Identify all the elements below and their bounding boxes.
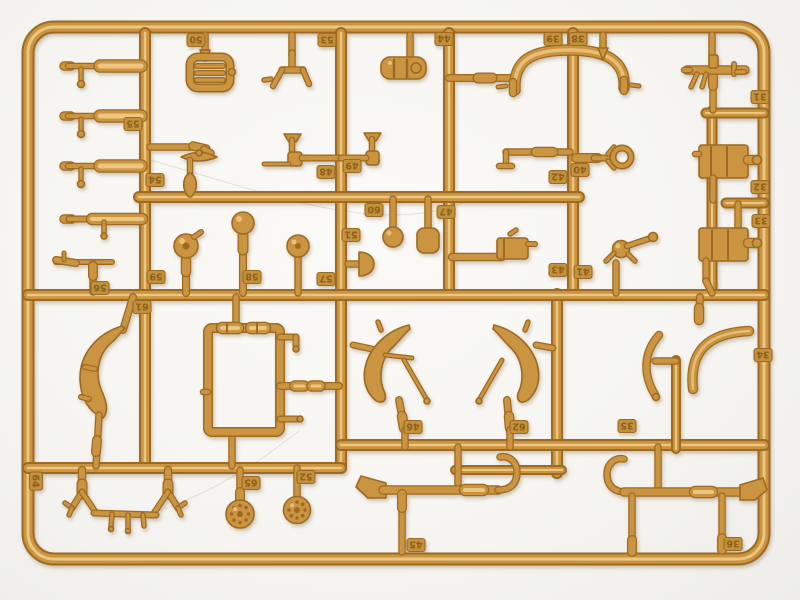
part-number-tag: 60 xyxy=(365,204,383,217)
part-number-tag: 64 xyxy=(30,472,43,490)
part-number-tag: 34 xyxy=(754,349,772,362)
part-number-tag: 38 xyxy=(569,33,587,46)
part-number-label: 65 xyxy=(244,477,257,488)
part-number-label: 50 xyxy=(189,34,203,45)
fender-part-left xyxy=(80,297,133,466)
perforated-wheel-part-1-hc xyxy=(238,504,242,508)
exhaust-pipe-part-left xyxy=(356,447,517,552)
part-number-label: 32 xyxy=(753,181,766,192)
perforated-wheel-part-2-hc xyxy=(301,514,305,518)
part-number-label: 33 xyxy=(754,215,767,226)
part-number-tag: 57 xyxy=(317,273,335,286)
part-number-tag: 54 xyxy=(146,174,164,187)
part-number-label: 51 xyxy=(344,229,357,240)
square-pad-part xyxy=(417,199,439,253)
perforated-wheel-part-1-hc xyxy=(244,518,248,522)
perforated-wheel-part-2-hc xyxy=(294,507,300,513)
funnel-part-left xyxy=(264,134,341,166)
part-number-label: 44 xyxy=(437,33,451,44)
part-number-label: 41 xyxy=(576,266,589,277)
perforated-wheel-part-2-hc xyxy=(303,508,307,512)
dome-bell-part-path xyxy=(359,252,374,276)
part-number-label: 52 xyxy=(299,471,312,482)
part-number-tag: 42 xyxy=(549,171,567,184)
wing-and-funnel-part xyxy=(181,150,217,197)
perforated-wheel-part-1-hc xyxy=(237,511,243,517)
part-number-tag: 62 xyxy=(510,421,528,434)
sprue-tree: 5053443938315554484942403233476051595857… xyxy=(28,27,772,559)
part-number-label: 34 xyxy=(756,349,770,360)
part-number-tag: 51 xyxy=(342,229,360,242)
chassis-frame-part-orect xyxy=(208,328,280,432)
small-wheel-part xyxy=(287,235,309,293)
part-number-tag: 33 xyxy=(752,215,770,228)
pistol-part-2-c xyxy=(78,131,85,138)
curved-arm-part-thin-c xyxy=(653,394,660,401)
part-number-label: 39 xyxy=(546,33,559,44)
part-number-label: 64 xyxy=(30,474,41,488)
mg-with-bipod-part-rect xyxy=(709,55,718,68)
fender-part-left-rod xyxy=(85,367,95,369)
part-number-tag: 31 xyxy=(751,91,769,104)
fender-part-left-rod xyxy=(96,440,97,452)
gearbox-block-part-upper-rect xyxy=(699,145,748,178)
chassis-frame-part-orect xyxy=(208,328,280,432)
part-number-label: 46 xyxy=(406,421,420,432)
wing-and-funnel-part-path xyxy=(184,173,197,197)
part-number-label: 56 xyxy=(93,282,107,293)
pistol-part-3-c xyxy=(78,181,85,188)
runner-frame xyxy=(28,27,764,559)
mg-with-bipod-part xyxy=(684,35,745,110)
perforated-wheel-part-2-hc xyxy=(301,503,305,507)
part-number-label: 48 xyxy=(319,166,333,177)
perforated-wheel-part-2-hc xyxy=(295,516,299,520)
part-number-tag: 55 xyxy=(124,118,142,131)
part-number-label: 57 xyxy=(319,273,332,284)
part-number-tag: 58 xyxy=(243,271,261,284)
part-number-label: 55 xyxy=(126,118,139,129)
aa-gun-part-lc xyxy=(616,244,621,249)
fender-part-left-rod xyxy=(81,397,89,399)
aa-gun-part-c xyxy=(649,233,658,242)
ball-knob-part-c xyxy=(232,212,254,234)
tow-bracket-part-rod xyxy=(111,514,112,527)
part-number-tag: 59 xyxy=(147,271,165,284)
horseshoe-shackle-part-rod xyxy=(498,86,506,87)
photo-scratch xyxy=(150,160,470,215)
curved-arm-part-thick xyxy=(692,297,749,389)
perforated-wheel-part-2-hc xyxy=(295,500,299,504)
part-number-label: 38 xyxy=(571,33,585,44)
part-number-label: 49 xyxy=(345,160,358,171)
dome-bell-part xyxy=(348,252,374,276)
clevis-fork-part-rod xyxy=(264,79,271,80)
part-number-tag: 43 xyxy=(549,264,567,277)
small-wheel-part-lc xyxy=(292,240,297,245)
aa-gun-part xyxy=(606,233,658,294)
pulley-disc-part xyxy=(174,232,201,293)
exhaust-pipe-part-right xyxy=(607,447,767,552)
part-number-tag: 45 xyxy=(407,539,425,552)
part-number-label: 58 xyxy=(245,271,259,282)
part-number-label: 62 xyxy=(512,421,525,432)
part-number-tag: 40 xyxy=(571,164,589,177)
perforated-wheel-part-2-hc xyxy=(290,514,294,518)
machine-gun-part xyxy=(64,219,142,239)
part-number-tag: 41 xyxy=(574,266,592,279)
pistol-part-3 xyxy=(64,166,141,188)
clevis-fork-part-rod xyxy=(303,70,309,84)
round-knob-part xyxy=(383,199,403,247)
fender-part-middle-left-rod xyxy=(404,360,427,400)
part-number-tag: 49 xyxy=(343,160,361,173)
small-wheel-part-hc xyxy=(295,243,301,249)
square-pad-part-rect xyxy=(417,228,439,253)
part-number-label: 59 xyxy=(149,271,162,282)
part-number-tag: 39 xyxy=(544,33,562,46)
part-number-label: 43 xyxy=(551,264,564,275)
part-number-label: 40 xyxy=(573,164,587,175)
perforated-wheel-part-1-hc xyxy=(238,521,242,525)
gearbox-block-part-lower-c xyxy=(753,239,762,248)
mg-receiver-part xyxy=(452,230,535,259)
clevis-fork-part xyxy=(264,35,309,86)
cylinder-drum-part xyxy=(381,35,426,79)
tow-bracket-part-c xyxy=(126,529,131,534)
chassis-frame-part xyxy=(203,297,339,466)
part-number-label: 47 xyxy=(439,206,452,217)
part-number-label: 61 xyxy=(135,301,148,312)
pistol-part-1 xyxy=(64,66,141,88)
part-number-label: 36 xyxy=(726,538,740,549)
fender-part-middle-right-c xyxy=(476,398,482,404)
hook-rod-part xyxy=(499,152,570,166)
part-number-label: 53 xyxy=(320,34,333,45)
part-number-tag: 48 xyxy=(317,166,335,179)
cylinder-drum-part-c xyxy=(411,63,421,73)
part-number-tag: 50 xyxy=(187,34,205,47)
perforated-wheel-part-1-lc xyxy=(233,507,237,511)
perforated-wheel-part-1-hc xyxy=(247,512,251,516)
grille-part-c xyxy=(229,69,236,76)
gearbox-block-part-upper-c xyxy=(753,156,762,165)
part-number-tag: 46 xyxy=(404,421,422,434)
perforated-wheel-part-1-hc xyxy=(230,512,234,516)
gearbox-block-part-lower-rect xyxy=(699,228,748,261)
part-number-label: 54 xyxy=(148,174,162,185)
part-number-tag: 47 xyxy=(437,206,455,219)
part-number-tag: 32 xyxy=(751,181,769,194)
part-number-tag: 36 xyxy=(724,538,742,551)
round-knob-part-lc xyxy=(387,231,392,236)
pistol-part-1-c xyxy=(78,81,85,88)
cylinder-drum-part-lc xyxy=(388,61,392,65)
part-number-tag: 65 xyxy=(242,477,260,490)
part-number-tag: 52 xyxy=(297,471,315,484)
chassis-frame-part-c xyxy=(297,416,303,422)
fender-part-left-path xyxy=(80,326,125,418)
ball-knob-part-lc xyxy=(236,216,242,222)
machine-gun-part-c xyxy=(101,233,107,239)
horseshoe-shackle-part xyxy=(449,50,639,93)
part-number-tag: 35 xyxy=(618,420,636,433)
perforated-wheel-part-1-hc xyxy=(244,506,248,510)
fender-part-middle-left-c xyxy=(424,398,430,404)
chassis-frame-part-c xyxy=(293,346,299,352)
tow-bracket-part-rod xyxy=(143,515,144,526)
part-number-label: 35 xyxy=(620,420,633,431)
part-number-tag: 61 xyxy=(133,301,151,314)
tow-bracket-part-c xyxy=(109,527,114,532)
part-number-label: 60 xyxy=(367,204,381,215)
round-knob-part-c xyxy=(383,227,403,247)
fender-part-middle-right-rod xyxy=(479,360,502,400)
perforated-wheel-part-2-lc xyxy=(290,503,294,507)
tow-bracket-part xyxy=(65,470,185,534)
fender-part-middle-right-rod xyxy=(536,345,553,348)
sprue-svg: 5053443938315554484942403233476051595857… xyxy=(0,0,800,600)
wing-and-funnel-part-c xyxy=(196,150,202,156)
pulley-disc-part-lc xyxy=(179,238,185,244)
perforated-wheel-part-1-hc xyxy=(232,518,236,522)
part-number-label: 42 xyxy=(551,171,564,182)
part-number-label: 31 xyxy=(753,91,766,102)
mg-receiver-part-rect xyxy=(497,238,528,259)
horseshoe-shackle-part-rod xyxy=(631,85,639,86)
sprue-photo: 5053443938315554484942403233476051595857… xyxy=(0,0,800,600)
tow-bracket-part-rod xyxy=(94,513,156,515)
part-number-tag: 56 xyxy=(91,282,109,295)
part-number-label: 45 xyxy=(409,539,422,550)
part-number-tag: 53 xyxy=(318,34,336,47)
perforated-wheel-part-2-hc xyxy=(287,508,291,512)
part-number-tag: 44 xyxy=(435,33,453,46)
